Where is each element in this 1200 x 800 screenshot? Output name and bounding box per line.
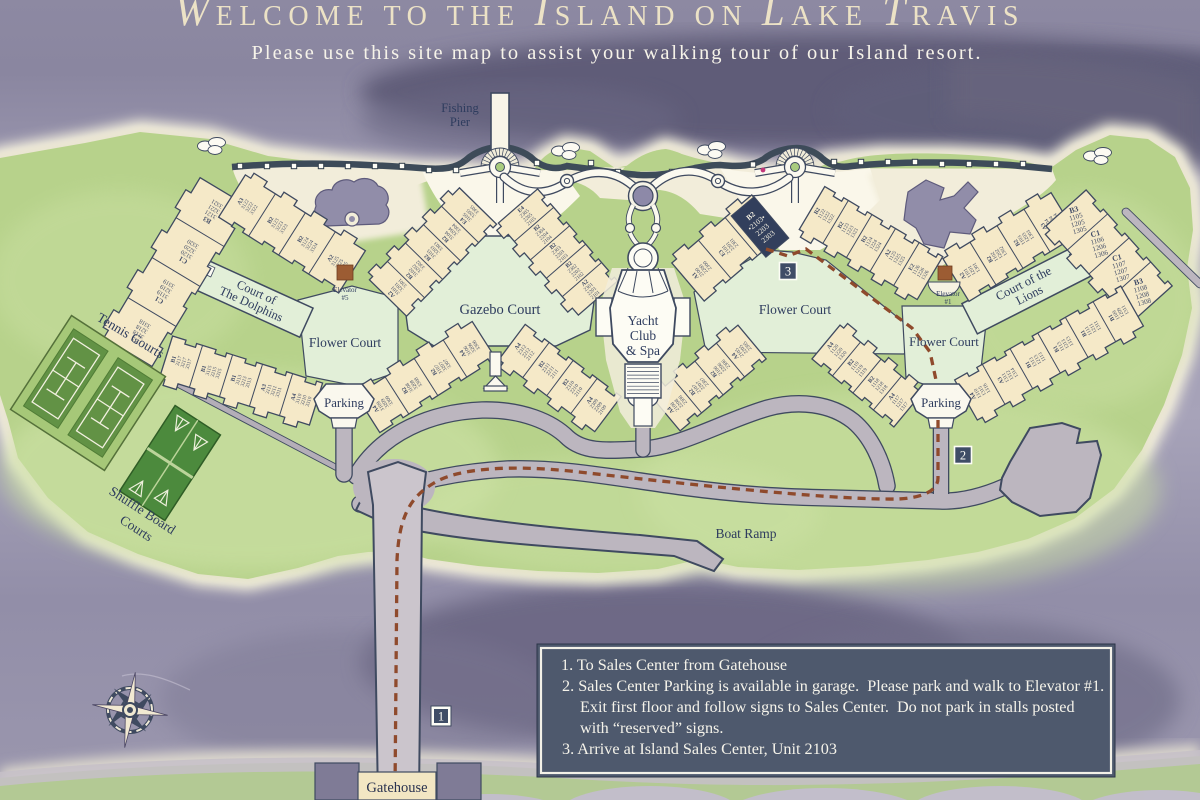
- svg-text:Boat Ramp: Boat Ramp: [715, 526, 776, 541]
- svg-text:Gazebo Court: Gazebo Court: [460, 302, 541, 318]
- svg-text:Gatehouse: Gatehouse: [366, 780, 427, 796]
- svg-text:3: 3: [785, 265, 791, 279]
- svg-text:Club: Club: [630, 328, 657, 343]
- svg-text:Flower Court: Flower Court: [759, 302, 832, 317]
- svg-text:Parking: Parking: [921, 396, 961, 410]
- svg-text:Fishing: Fishing: [441, 101, 479, 115]
- svg-text:Pier: Pier: [450, 115, 471, 129]
- svg-text:with “reserved” signs.: with “reserved” signs.: [580, 719, 723, 737]
- svg-text:Please use this site map to as: Please use this site map to assist your …: [251, 42, 982, 64]
- svg-text:2. Sales Center Parking is ava: 2. Sales Center Parking is available in …: [562, 677, 1104, 695]
- svg-text:Elevator: Elevator: [936, 290, 960, 298]
- svg-text:#5: #5: [342, 294, 350, 302]
- svg-text:1: 1: [438, 710, 444, 724]
- svg-text:Exit first floor and follow si: Exit first floor and follow signs to Sal…: [580, 698, 1075, 716]
- svg-text:2: 2: [960, 449, 966, 463]
- svg-text:1. To Sales Center from Gateho: 1. To Sales Center from Gatehouse: [561, 656, 787, 674]
- svg-text:#1: #1: [945, 298, 953, 306]
- svg-text:Yacht: Yacht: [628, 313, 659, 328]
- svg-text:Flower Court: Flower Court: [909, 334, 979, 349]
- svg-text:& Spa: & Spa: [626, 343, 660, 358]
- svg-text:Parking: Parking: [324, 396, 364, 410]
- svg-text:WELCOME TO THE ISLAND ON LAKE: WELCOME TO THE ISLAND ON LAKE TRAVIS: [175, 0, 1025, 34]
- svg-text:3. Arrive at Island Sales Cent: 3. Arrive at Island Sales Center, Unit 2…: [562, 740, 837, 758]
- svg-text:Flower Court: Flower Court: [309, 335, 382, 350]
- svg-text:Elevator: Elevator: [333, 286, 357, 294]
